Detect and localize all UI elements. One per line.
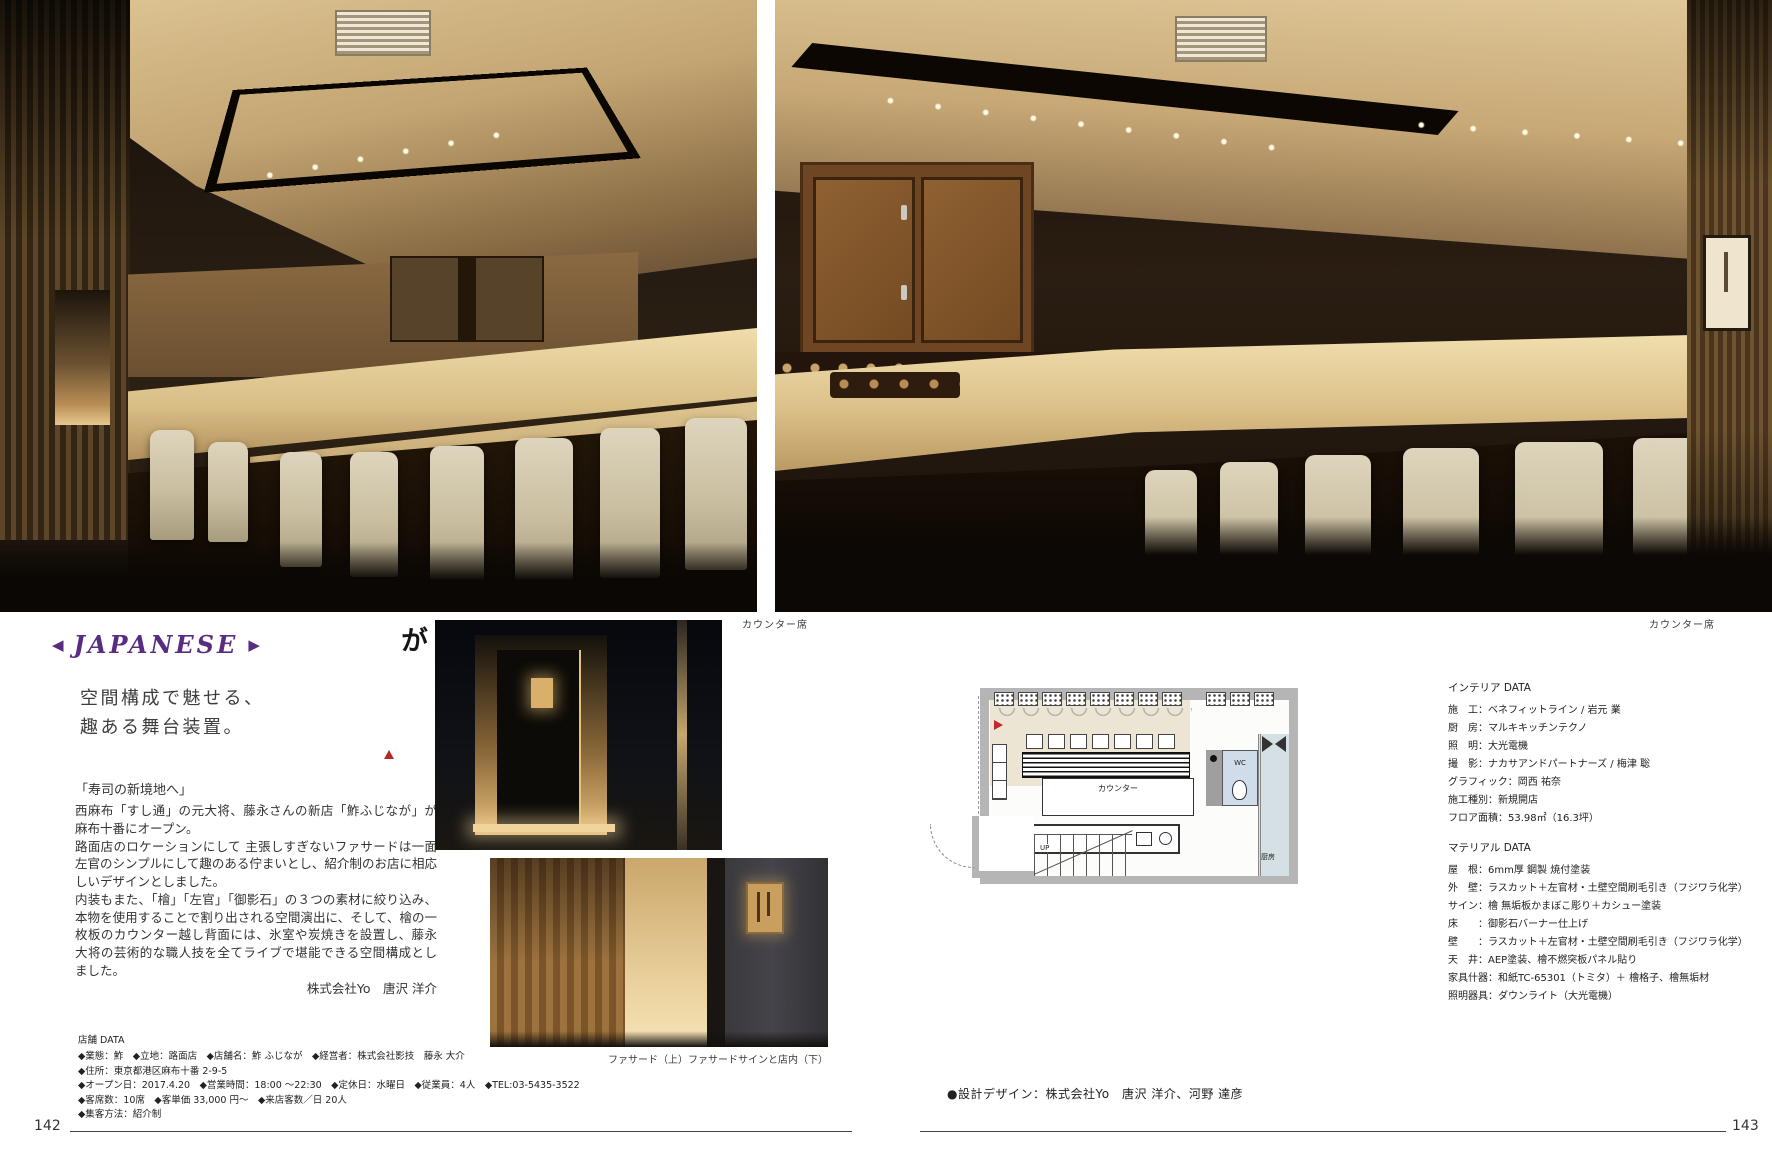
right-triangle-icon: ▶ [248,636,260,654]
plan-double-door-icon [1275,736,1286,752]
plan-equipment-symbol [1136,832,1152,846]
step-light-shape [473,824,615,832]
hanging-scroll-shape [1703,235,1751,331]
plan-toilet-symbol [1232,780,1247,800]
shop-data-line: ◆集客方法：紹介制 [78,1108,738,1122]
cabinet-panel-shape [813,177,915,343]
plan-fixture-dot [1210,755,1217,762]
interior-data-line: 施 工：ベネフィットライン / 岩元 業 [1448,704,1760,718]
plan-vestibule [972,816,1034,878]
headline-line1: 空間構成で魅せる、 [80,684,265,713]
interior-data-line: グラフィック：岡西 祐奈 [1448,776,1760,790]
icebox-cabinet-shape [390,256,544,342]
photo-counter-right [775,0,1772,612]
tea-tray-shape [830,372,960,398]
footer-rule-right [920,1131,1726,1132]
headline-line2: 趣ある舞台装置。 [80,713,265,742]
page-number-left: 142 [34,1118,61,1134]
caption-main-right: カウンター席 [1447,616,1715,631]
plan-wall [1289,688,1298,884]
slat-wall-shape [0,0,130,540]
cabinet-hinge-shape [901,205,907,220]
article-lead: 「寿司の新境地へ」 [75,779,192,798]
material-data-line: 家具什器：和紙TC-65301（トミタ）＋ 檜格子、檜無垢材 [1448,972,1760,986]
lit-alcove-shape [55,290,110,425]
wood-wall-shape [490,858,625,1047]
sign-calligraphy-shape [757,892,760,922]
lit-wall-shape [625,858,707,1047]
photo-counter-left [0,0,757,612]
material-data-line: 照明器具：ダウンライト（大光電機） [1448,990,1760,1004]
plan-door-swing-arc [930,824,974,868]
plan-chair-symbol [1066,692,1086,706]
plan-wall [980,688,989,836]
plan-stool-symbol [1158,734,1175,749]
paragraph: 内装もまた、「檜」「左官」「御影石」の３つの素材に絞り込み、本物を使用することで… [75,891,437,980]
photo-facade-sign-interior [490,858,828,1047]
interior-data-line: 施工種別：新規開店 [1448,794,1760,808]
door-frame-shape [707,858,725,1047]
material-data-title: マテリアル DATA [1448,840,1760,855]
material-data-line: 床 ：御影石バーナー仕上げ [1448,918,1760,932]
plan-chair-symbol [1230,692,1250,706]
design-credit: ●設計デザイン：株式会社Yo 唐沢 洋介、河野 達彦 [947,1085,1243,1102]
plan-chair-row [994,692,1182,706]
plan-counter-hatch [1022,752,1190,778]
interior-data-line: 厨 房：マルキキッチンテクノ [1448,722,1760,736]
air-vent-shape [335,10,431,56]
interior-data-title: インテリア DATA [1448,680,1760,695]
plan-up-label: UP [1038,844,1051,852]
plan-chair-symbol [1042,692,1062,706]
shop-data-line: ◆オープン日：2017.4.20 ◆営業時間：18:00 ～22:30 ◆定休日… [78,1079,738,1093]
paragraph: 路面店のロケーションにして 主張しすぎないファサードは一面左官のシンプルにして趣… [75,838,437,891]
plan-stool-symbol [1070,734,1087,749]
category-header: ◀ JAPANESE ▶ [52,630,260,659]
shop-data-line: ◆客席数：10席 ◆客単価 33,000 円～ ◆来店客数／日 20人 [78,1094,738,1108]
author-credit: 株式会社Yo 唐沢 洋介 [75,980,437,998]
left-triangle-icon: ◀ [52,636,64,654]
headline: 空間構成で魅せる、 趣ある舞台装置。 [80,684,265,742]
plan-light-arcs [996,708,1192,718]
category-label: JAPANESE [74,630,239,659]
plan-chair-symbol [1090,692,1110,706]
air-vent-shape [1175,16,1267,62]
plan-double-door-icon [1262,736,1273,752]
plan-stool-symbol [1092,734,1109,749]
material-data-block: マテリアル DATA 屋 根：6mm厚 鋼製 焼付塗装 外 壁：ラスカット＋左官… [1448,840,1760,1008]
floor-shape [490,1031,828,1047]
sign-plaque-shape [531,678,553,708]
chair-shape [208,442,248,542]
plan-stool-symbol [1026,734,1043,749]
plan-counter-label: カウンター [1042,778,1194,816]
article-body: 西麻布「すし通」の元大将、藤永さんの新店「鮓ふじなが」が麻布十番にオープン。 路… [75,802,437,997]
cabinet-hinge-shape [901,285,907,300]
plan-shelf-symbol [992,744,1007,800]
plan-chair-symbol [1254,692,1274,706]
plan-chair-symbol [1162,692,1182,706]
material-data-line: 外 壁：ラスカット＋左官材・土壁空間刷毛引き（フジワラ化学） [1448,882,1760,896]
plan-equipment-symbol [1159,832,1172,845]
plan-chair-symbol [994,692,1014,706]
plan-stairs [1034,834,1132,876]
caption-middle-photos: ファサード（上）ファサードサインと店内（下） [490,1051,828,1066]
magazine-spread: カウンター席 カウンター席 ◀ JAPANESE ▶ 空間構成で魅せる、 趣ある… [0,0,1772,1170]
material-data-line: 屋 根：6mm厚 鋼製 焼付塗装 [1448,864,1760,878]
material-data-line: サイン：檜 無垢板かまぼこ彫り＋カシュー塗装 [1448,900,1760,914]
page-number-right: 143 [1732,1118,1759,1134]
scroll-calligraphy-shape [1724,252,1728,292]
plan-kitchen-label: 厨房 [1261,852,1275,862]
sign-plaque-shape [746,882,784,934]
icebox-cabinet-shape [800,162,1034,356]
plan-wc-anteroom [1206,750,1222,806]
sign-calligraphy-shape [767,892,770,916]
paragraph: 西麻布「すし通」の元大将、藤永さんの新店「鮓ふじなが」が麻布十番にオープン。 [75,802,437,838]
floor-shape [0,542,757,612]
plan-stool-symbol [1114,734,1131,749]
interior-data-block: インテリア DATA 施 工：ベネフィットライン / 岩元 業 厨 房：マルキキ… [1448,680,1760,830]
plan-chair-symbol [1138,692,1158,706]
interior-data-line: フロア面積：53.98㎡（16.3坪） [1448,812,1760,826]
footer-rule-left [70,1131,852,1132]
chair-shape [150,430,194,540]
shop-data-block: 店舗 DATA ◆業態：鮓 ◆立地：路面店 ◆店舗名：鮓 ふじなが ◆経営者：株… [78,1034,738,1123]
interior-data-line: 照 明：大光電機 [1448,740,1760,754]
floor-shape [775,517,1772,612]
plan-chair-symbol [1114,692,1134,706]
light-strip-shape [677,620,687,850]
plan-property-line [978,696,979,814]
plan-entrance-arrow-icon [994,720,1003,730]
floor-plan: カウンター WC 厨房 UP [930,684,1302,888]
plan-stool-symbol [1136,734,1153,749]
plan-chair-row [1206,692,1274,706]
red-seal-icon [384,750,394,759]
plan-chair-symbol [1018,692,1038,706]
plan-stool-row [1026,734,1175,749]
interior-data-line: 撮 影：ナカサアンドパートナーズ / 梅津 聡 [1448,758,1760,772]
material-data-line: 壁 ：ラスカット＋左官材・土壁空間刷毛引き（フジワラ化学） [1448,936,1760,950]
cabinet-panel-shape [921,177,1023,343]
photo-facade [435,620,722,850]
entrance-door-shape [497,650,581,826]
plan-stool-symbol [1048,734,1065,749]
plan-chair-symbol [1206,692,1226,706]
shop-data-line: ◆住所：東京都港区麻布十番 2-9-5 [78,1065,738,1079]
material-data-line: 天 井：AEP塗装、檜不燃突板パネル貼り [1448,954,1760,968]
